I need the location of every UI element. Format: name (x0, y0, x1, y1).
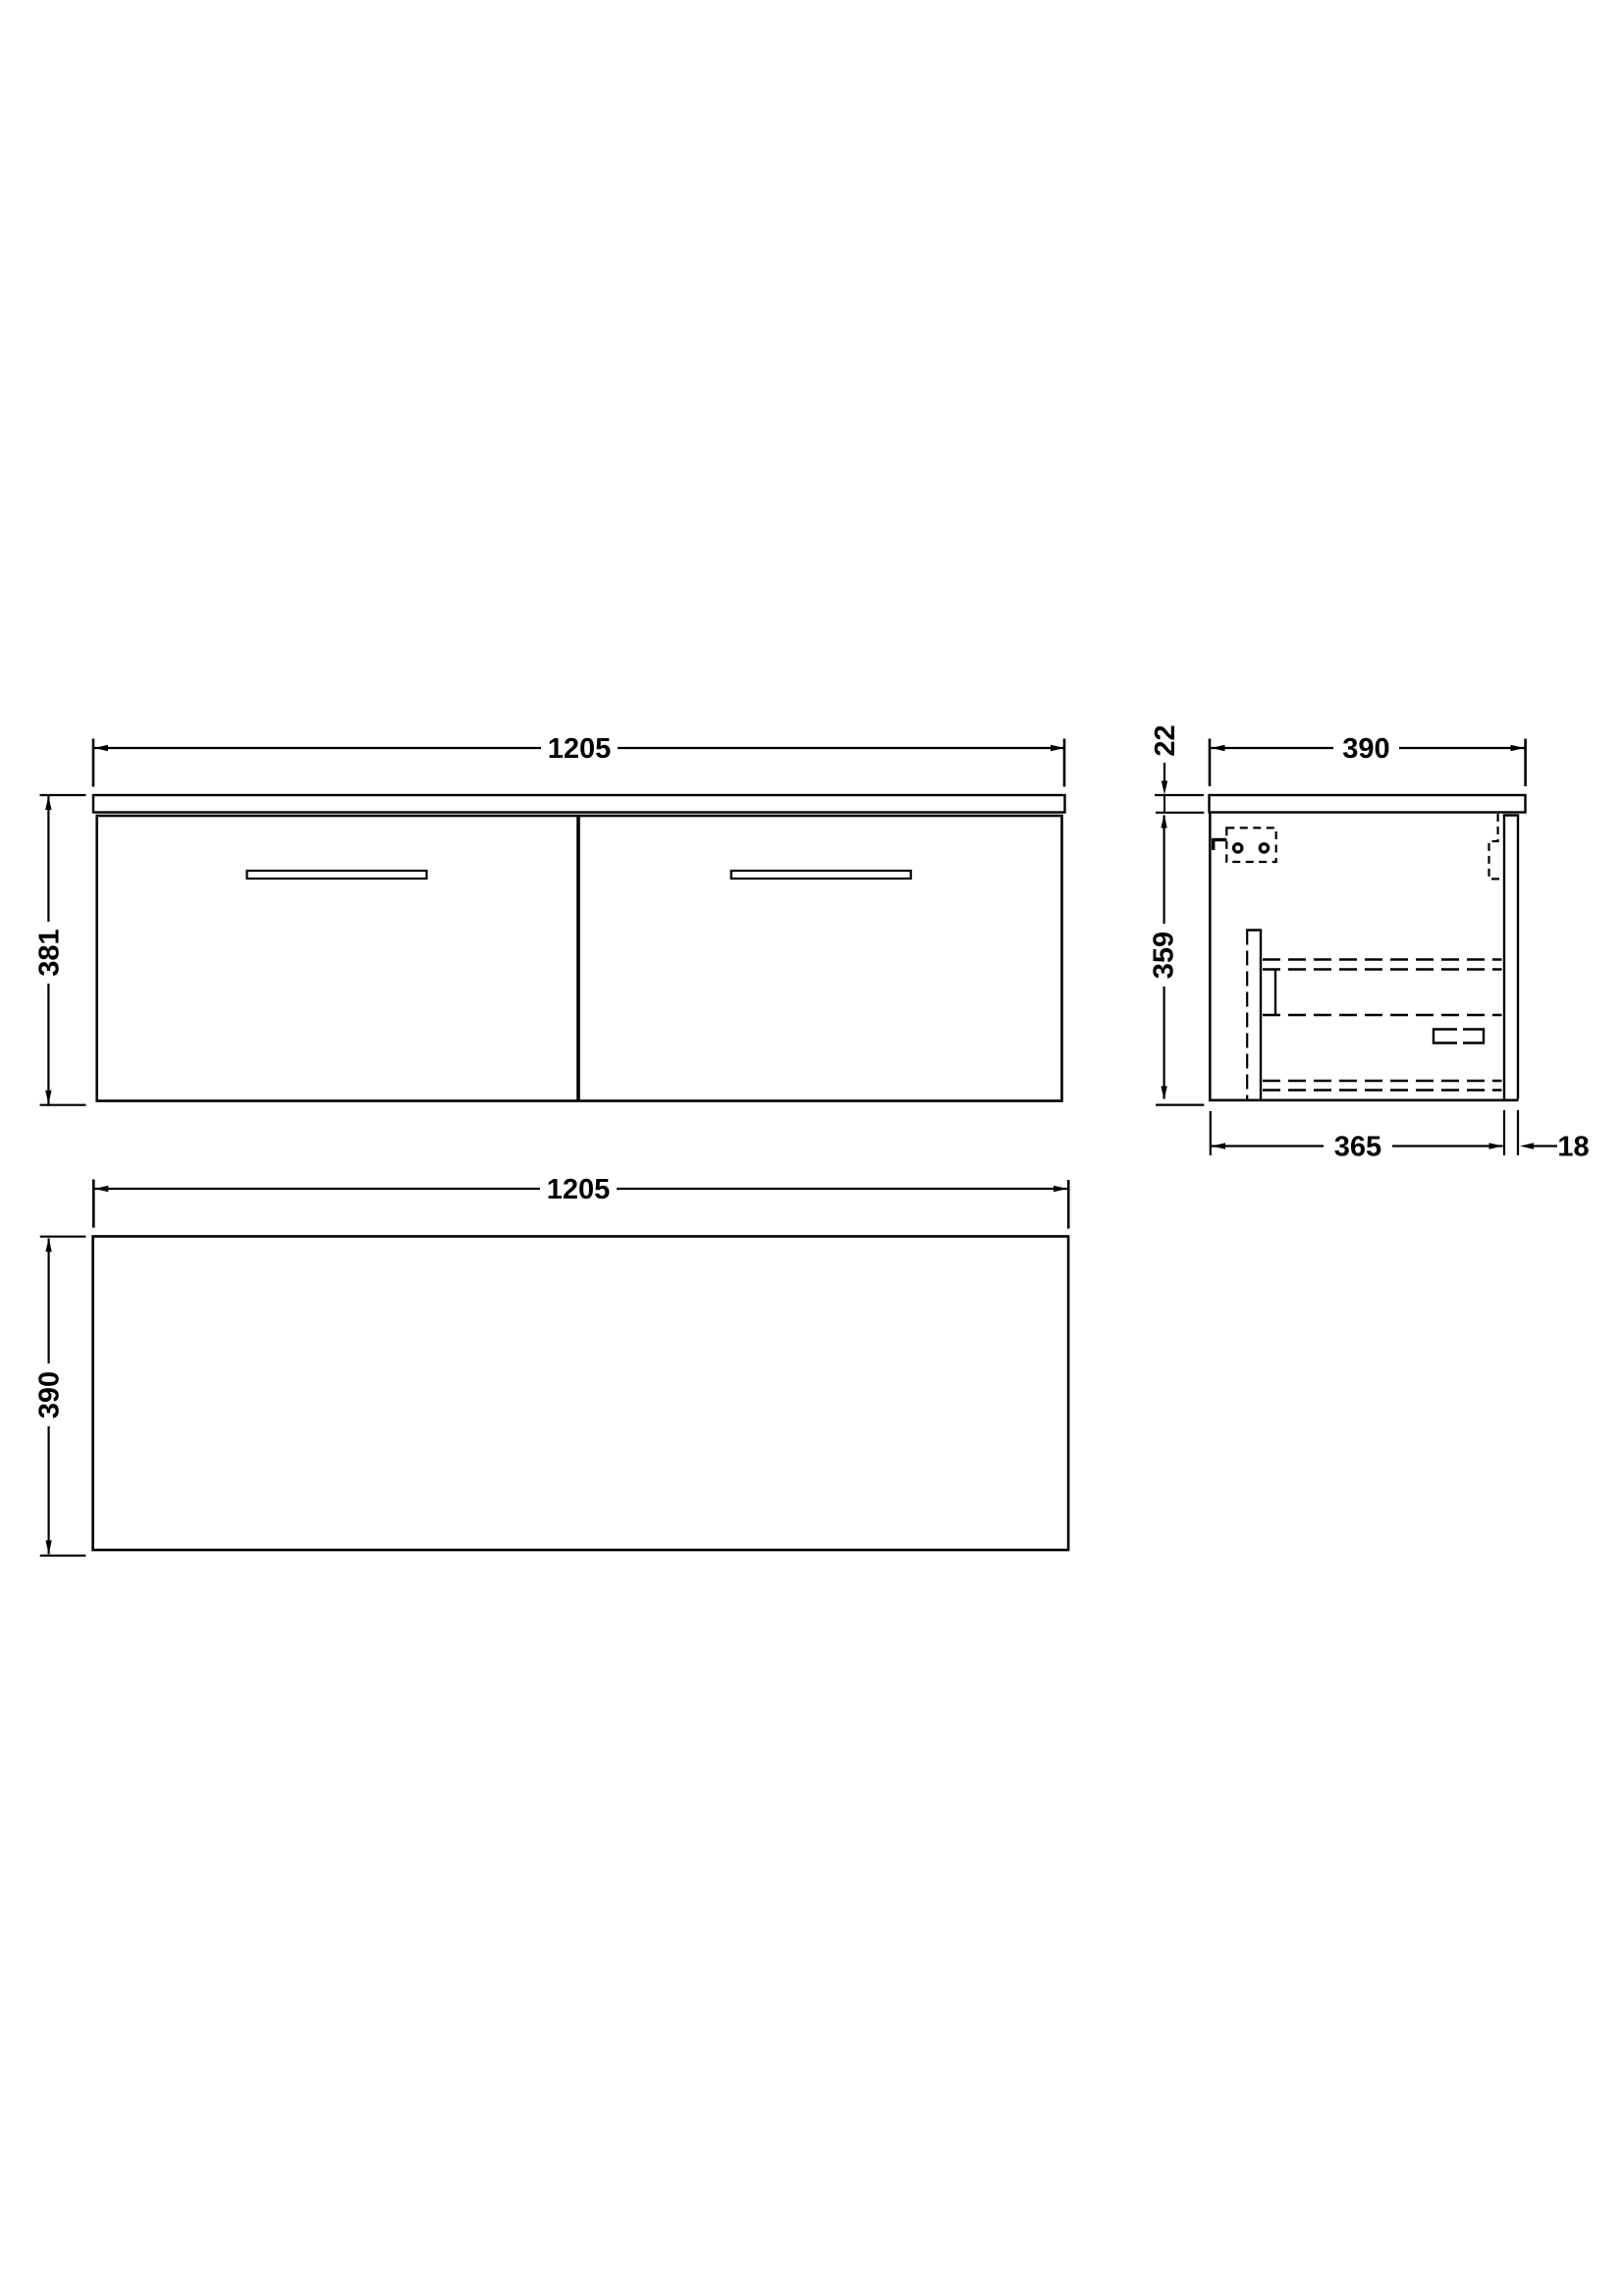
svg-text:390: 390 (1342, 733, 1389, 765)
svg-text:22: 22 (1150, 724, 1181, 756)
svg-text:1205: 1205 (548, 733, 612, 765)
svg-text:359: 359 (1149, 932, 1180, 979)
svg-text:365: 365 (1334, 1132, 1381, 1163)
svg-text:18: 18 (1557, 1132, 1589, 1163)
svg-text:390: 390 (34, 1371, 66, 1418)
svg-text:381: 381 (33, 929, 65, 976)
svg-text:1205: 1205 (547, 1174, 611, 1205)
